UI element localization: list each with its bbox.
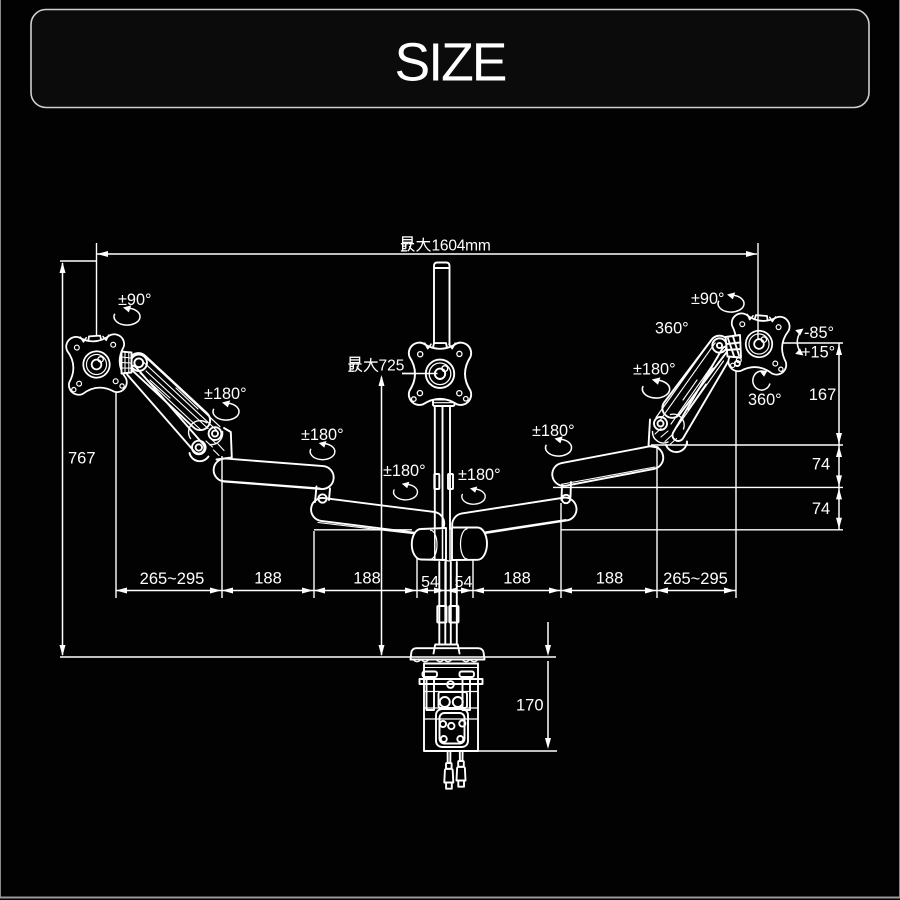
svg-text:±180°: ±180° xyxy=(301,426,344,444)
svg-text:-85°: -85° xyxy=(804,324,834,342)
svg-text:SIZE: SIZE xyxy=(395,34,506,93)
svg-text:54: 54 xyxy=(421,574,439,591)
svg-text:±90°: ±90° xyxy=(118,291,152,309)
svg-text:1604mm: 1604mm xyxy=(432,238,491,255)
svg-text:±180°: ±180° xyxy=(532,422,575,440)
svg-text:188: 188 xyxy=(503,570,531,588)
svg-text:±180°: ±180° xyxy=(204,385,247,403)
svg-text:74: 74 xyxy=(812,500,830,518)
svg-text:188: 188 xyxy=(353,570,381,588)
svg-text:±180°: ±180° xyxy=(458,466,501,484)
svg-text:188: 188 xyxy=(254,570,282,588)
svg-text:±90°: ±90° xyxy=(691,290,725,308)
svg-text:+15°: +15° xyxy=(801,344,835,362)
svg-text:167: 167 xyxy=(809,386,837,404)
svg-text:265~295: 265~295 xyxy=(663,570,728,588)
svg-text:±180°: ±180° xyxy=(633,361,676,379)
svg-text:725: 725 xyxy=(379,358,405,375)
svg-text:360°: 360° xyxy=(748,391,782,409)
svg-text:767: 767 xyxy=(68,450,96,468)
svg-text:188: 188 xyxy=(596,570,624,588)
svg-text:170: 170 xyxy=(516,697,544,715)
svg-text:265~295: 265~295 xyxy=(140,570,205,588)
svg-text:74: 74 xyxy=(812,456,830,474)
svg-text:360°: 360° xyxy=(655,320,689,338)
svg-text:±180°: ±180° xyxy=(383,462,426,480)
